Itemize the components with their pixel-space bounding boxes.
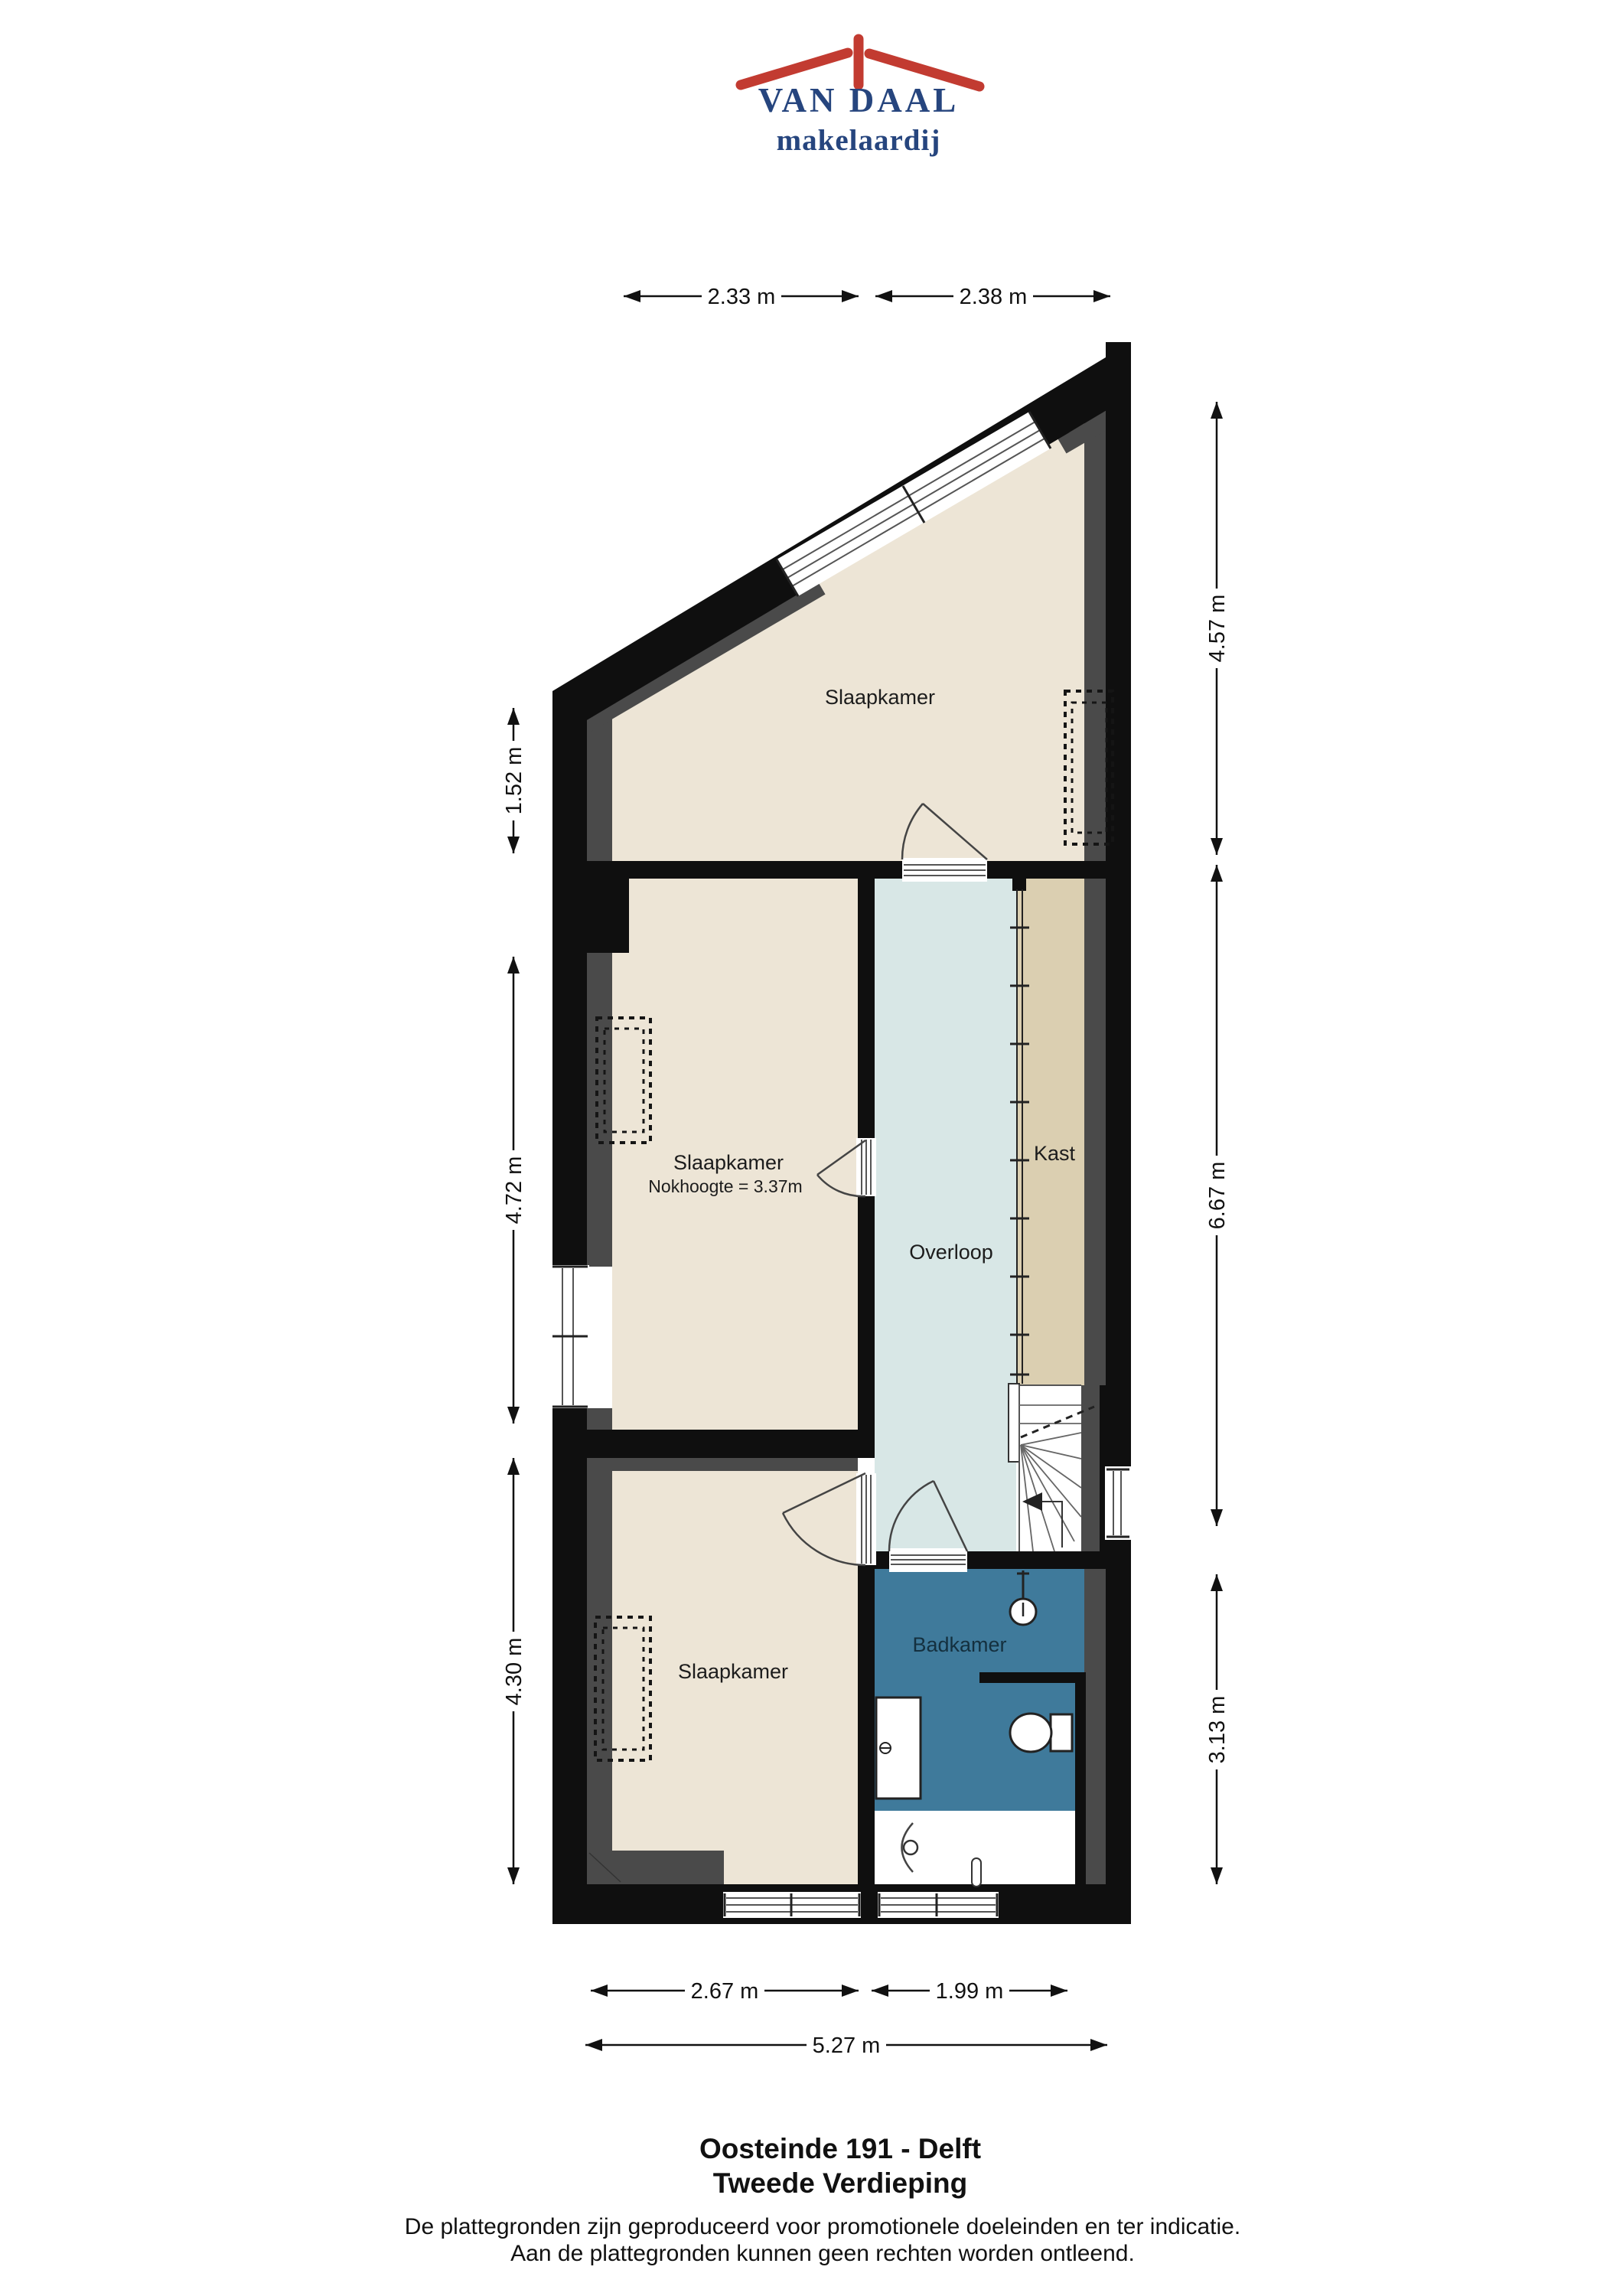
svg-text:2.33 m: 2.33 m [708,285,776,309]
dimension-right-2: 6.67 m [1202,865,1231,1526]
footer: Oosteinde 191 - Delft Tweede Verdieping … [405,2133,1240,2266]
room-label-slaapkamer-bottom: Slaapkamer [678,1660,788,1683]
room-label-overloop: Overloop [909,1241,993,1264]
room-label-kast: Kast [1034,1142,1076,1165]
floor-plan: Slaapkamer Slaapkamer Nokhoogte = 3.37m … [499,282,1231,2060]
footer-title: Oosteinde 191 - Delft [699,2133,981,2164]
floorplan-sheet: VAN DAAL makelaardij [0,0,1623,2296]
dimension-bottom-2: 1.99 m [872,1976,1067,2005]
svg-text:6.67 m: 6.67 m [1205,1162,1230,1230]
dimension-right-1: 4.57 m [1202,402,1231,855]
window-right-wall-stairs [1105,1466,1131,1540]
svg-text:2.67 m: 2.67 m [691,1979,759,2004]
dimension-top-2: 2.38 m [875,282,1110,311]
window-left-wall [551,1265,589,1408]
toilet-icon [1010,1714,1072,1752]
room-note-nokhoogte: Nokhoogte = 3.37m [648,1176,802,1196]
wall-right [1106,342,1131,1924]
footer-disclaimer-2: Aan de plattegronden kunnen geen rechten… [510,2241,1135,2266]
svg-text:3.13 m: 3.13 m [1205,1696,1230,1764]
room-label-slaapkamer-middle: Slaapkamer [673,1151,784,1174]
sink-icon [876,1698,921,1799]
logo-name: VAN DAAL [758,81,959,119]
svg-text:2.38 m: 2.38 m [960,285,1028,309]
svg-text:4.57 m: 4.57 m [1205,595,1230,663]
window-bottom-right [878,1892,999,1918]
dimension-left-3: 4.30 m [499,1458,528,1884]
footer-subtitle: Tweede Verdieping [713,2167,967,2199]
logo-tagline: makelaardij [777,124,941,157]
agency-logo: VAN DAAL makelaardij [741,39,979,157]
svg-text:5.27 m: 5.27 m [813,2033,881,2058]
window-bottom-left [723,1892,861,1918]
dimension-left-2: 4.72 m [499,957,528,1424]
floor-overloop [875,879,1016,1551]
dimension-bottom-3: 5.27 m [585,2030,1107,2060]
logo-roof-icon [741,39,979,86]
room-label-badkamer: Badkamer [912,1633,1006,1656]
svg-text:1.99 m: 1.99 m [936,1979,1004,2004]
room-label-slaapkamer-top: Slaapkamer [825,686,935,709]
svg-text:4.72 m: 4.72 m [502,1156,526,1225]
svg-text:1.52 m: 1.52 m [502,747,526,815]
svg-text:4.30 m: 4.30 m [502,1638,526,1706]
dimension-left-1: 1.52 m [499,708,528,853]
dimension-right-3: 3.13 m [1202,1574,1231,1884]
dimension-bottom-1: 2.67 m [591,1976,859,2005]
dimension-top-1: 2.33 m [624,282,859,311]
footer-disclaimer-1: De plattegronden zijn geproduceerd voor … [405,2214,1240,2239]
floor-kast [1018,879,1084,1385]
